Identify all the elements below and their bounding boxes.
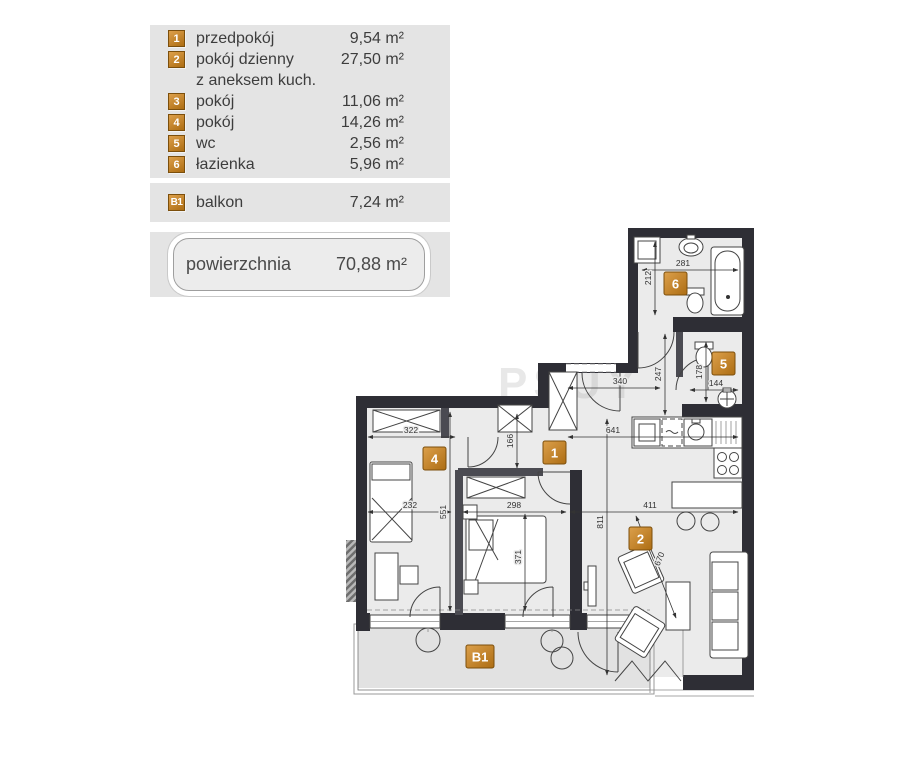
room-number-badge: 2 (168, 51, 185, 68)
bed-double (466, 516, 546, 583)
washing-machine (634, 237, 660, 263)
legend-row: 4 pokój 14,26 m² (150, 112, 450, 133)
room-label-5: 5 (712, 352, 735, 375)
room-name-note: z aneksem kuch. (196, 72, 404, 90)
dim-label: 281 (676, 258, 690, 268)
room-area: 9,54 m² (350, 30, 404, 48)
legend-row: 5 wc 2,56 m² (150, 133, 450, 154)
svg-text:6: 6 (672, 277, 679, 292)
dresser (375, 553, 398, 600)
room-name: balkon (196, 194, 350, 212)
dim-label: 641 (606, 425, 620, 435)
room3-furniture (463, 505, 546, 594)
coffee-table (666, 582, 690, 630)
room-label-4: 4 (423, 447, 446, 470)
wardrobe (467, 477, 525, 498)
room-name: pokój dzienny (196, 51, 341, 69)
total-panel: powierzchnia 70,88 m² (150, 232, 450, 297)
side-table (400, 566, 418, 584)
dim-label: 232 (403, 500, 417, 510)
stove (714, 448, 742, 478)
svg-text:5: 5 (720, 357, 727, 372)
floor-plan-svg: PSUY (0, 0, 924, 757)
dim-label: 411 (643, 500, 657, 510)
legend-row: B1 balkon 7,24 m² (150, 192, 450, 213)
room4-furniture (370, 462, 418, 600)
svg-text:2: 2 (637, 532, 644, 547)
legend-row: 6 łazienka 5,96 m² (150, 154, 450, 175)
room-area: 11,06 m² (342, 93, 404, 111)
svg-text:4: 4 (431, 452, 439, 467)
kitchen-table (672, 482, 742, 508)
legend-row-note: z aneksem kuch. (150, 70, 450, 91)
dim-label: 212 (643, 271, 653, 285)
legend-row: 1 przedpokój 9,54 m² (150, 28, 450, 49)
wardrobe (498, 405, 532, 432)
room-number-badge: 6 (168, 156, 185, 173)
legend-panel: 1 przedpokój 9,54 m² 2 pokój dzienny 27,… (150, 25, 450, 178)
dim-label: 144 (709, 378, 723, 388)
room-label-1: 1 (543, 441, 566, 464)
room-number-badge: B1 (168, 194, 185, 211)
exterior-wall-hatch (346, 540, 356, 602)
wardrobe (549, 372, 577, 430)
dim-label: 322 (404, 425, 418, 435)
toilet (686, 288, 704, 313)
room-number-badge: 3 (168, 93, 185, 110)
balcony-panel: B1 balkon 7,24 m² (150, 183, 450, 222)
room-number-badge: 5 (168, 135, 185, 152)
room-name: pokój (196, 93, 342, 111)
total-area: 70,88 m² (336, 254, 407, 275)
room-area: 14,26 m² (341, 114, 404, 132)
dim-label: 178 (694, 365, 704, 379)
room-area: 7,24 m² (350, 194, 404, 212)
nightstand (464, 580, 478, 594)
room-name: pokój (196, 114, 341, 132)
dim-label: 811 (595, 515, 605, 529)
floorplan-page: PSUY (0, 0, 924, 757)
dim-label: 371 (513, 550, 523, 564)
dim-label: 247 (653, 367, 663, 381)
svg-text:B1: B1 (472, 650, 489, 665)
dim-label: 298 (507, 500, 521, 510)
room-area: 2,56 m² (350, 135, 404, 153)
dim-label: 551 (438, 505, 448, 519)
room-area: 5,96 m² (350, 156, 404, 174)
room-label-b1: B1 (466, 645, 494, 668)
toilet (695, 342, 713, 367)
room-number-badge: 1 (168, 30, 185, 47)
room-number-badge: 4 (168, 114, 185, 131)
sofa (710, 552, 748, 658)
dishwasher (662, 419, 682, 446)
total-label: powierzchnia (186, 254, 291, 275)
room-area: 27,50 m² (341, 51, 404, 69)
room-label-2: 2 (629, 527, 652, 550)
bathtub (711, 247, 744, 315)
balcony-floor (358, 628, 650, 688)
dim-label: 340 (613, 376, 627, 386)
legend-row: 2 pokój dzienny 27,50 m² (150, 49, 450, 70)
room-name: wc (196, 135, 350, 153)
room-name: łazienka (196, 156, 350, 174)
fridge (634, 419, 660, 446)
svg-text:1: 1 (551, 446, 558, 461)
dim-label: 166 (505, 434, 515, 448)
kitchen-sink (684, 419, 712, 446)
room-label-6: 6 (664, 272, 687, 295)
room-name: przedpokój (196, 30, 350, 48)
legend-row: 3 pokój 11,06 m² (150, 91, 450, 112)
total-pill: powierzchnia 70,88 m² (173, 238, 425, 291)
